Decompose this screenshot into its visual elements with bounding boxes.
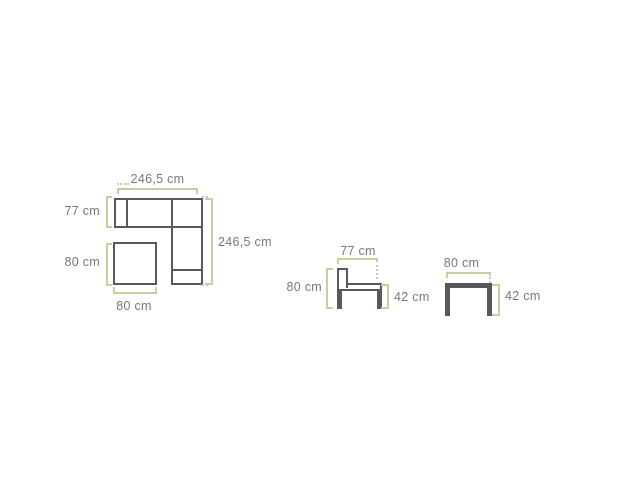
table-top [445,283,492,288]
dimension-tick [492,314,499,316]
table-width-label: 80 cm [434,257,489,270]
table-left-leg [445,288,450,316]
table-diagram: 80 cm 42 cm [0,0,640,480]
dimension-tick [446,272,448,278]
table-width-dimension-line [446,272,491,274]
table-height-label: 42 cm [505,290,541,303]
dimension-tick [492,284,499,286]
table-height-dimension-line [498,284,500,316]
dotted-guide [489,274,491,283]
furniture-dimension-diagram: 246,5 cm 77 cm 246,5 cm 80 cm 80 cm [0,0,640,480]
table-right-leg [487,288,492,316]
